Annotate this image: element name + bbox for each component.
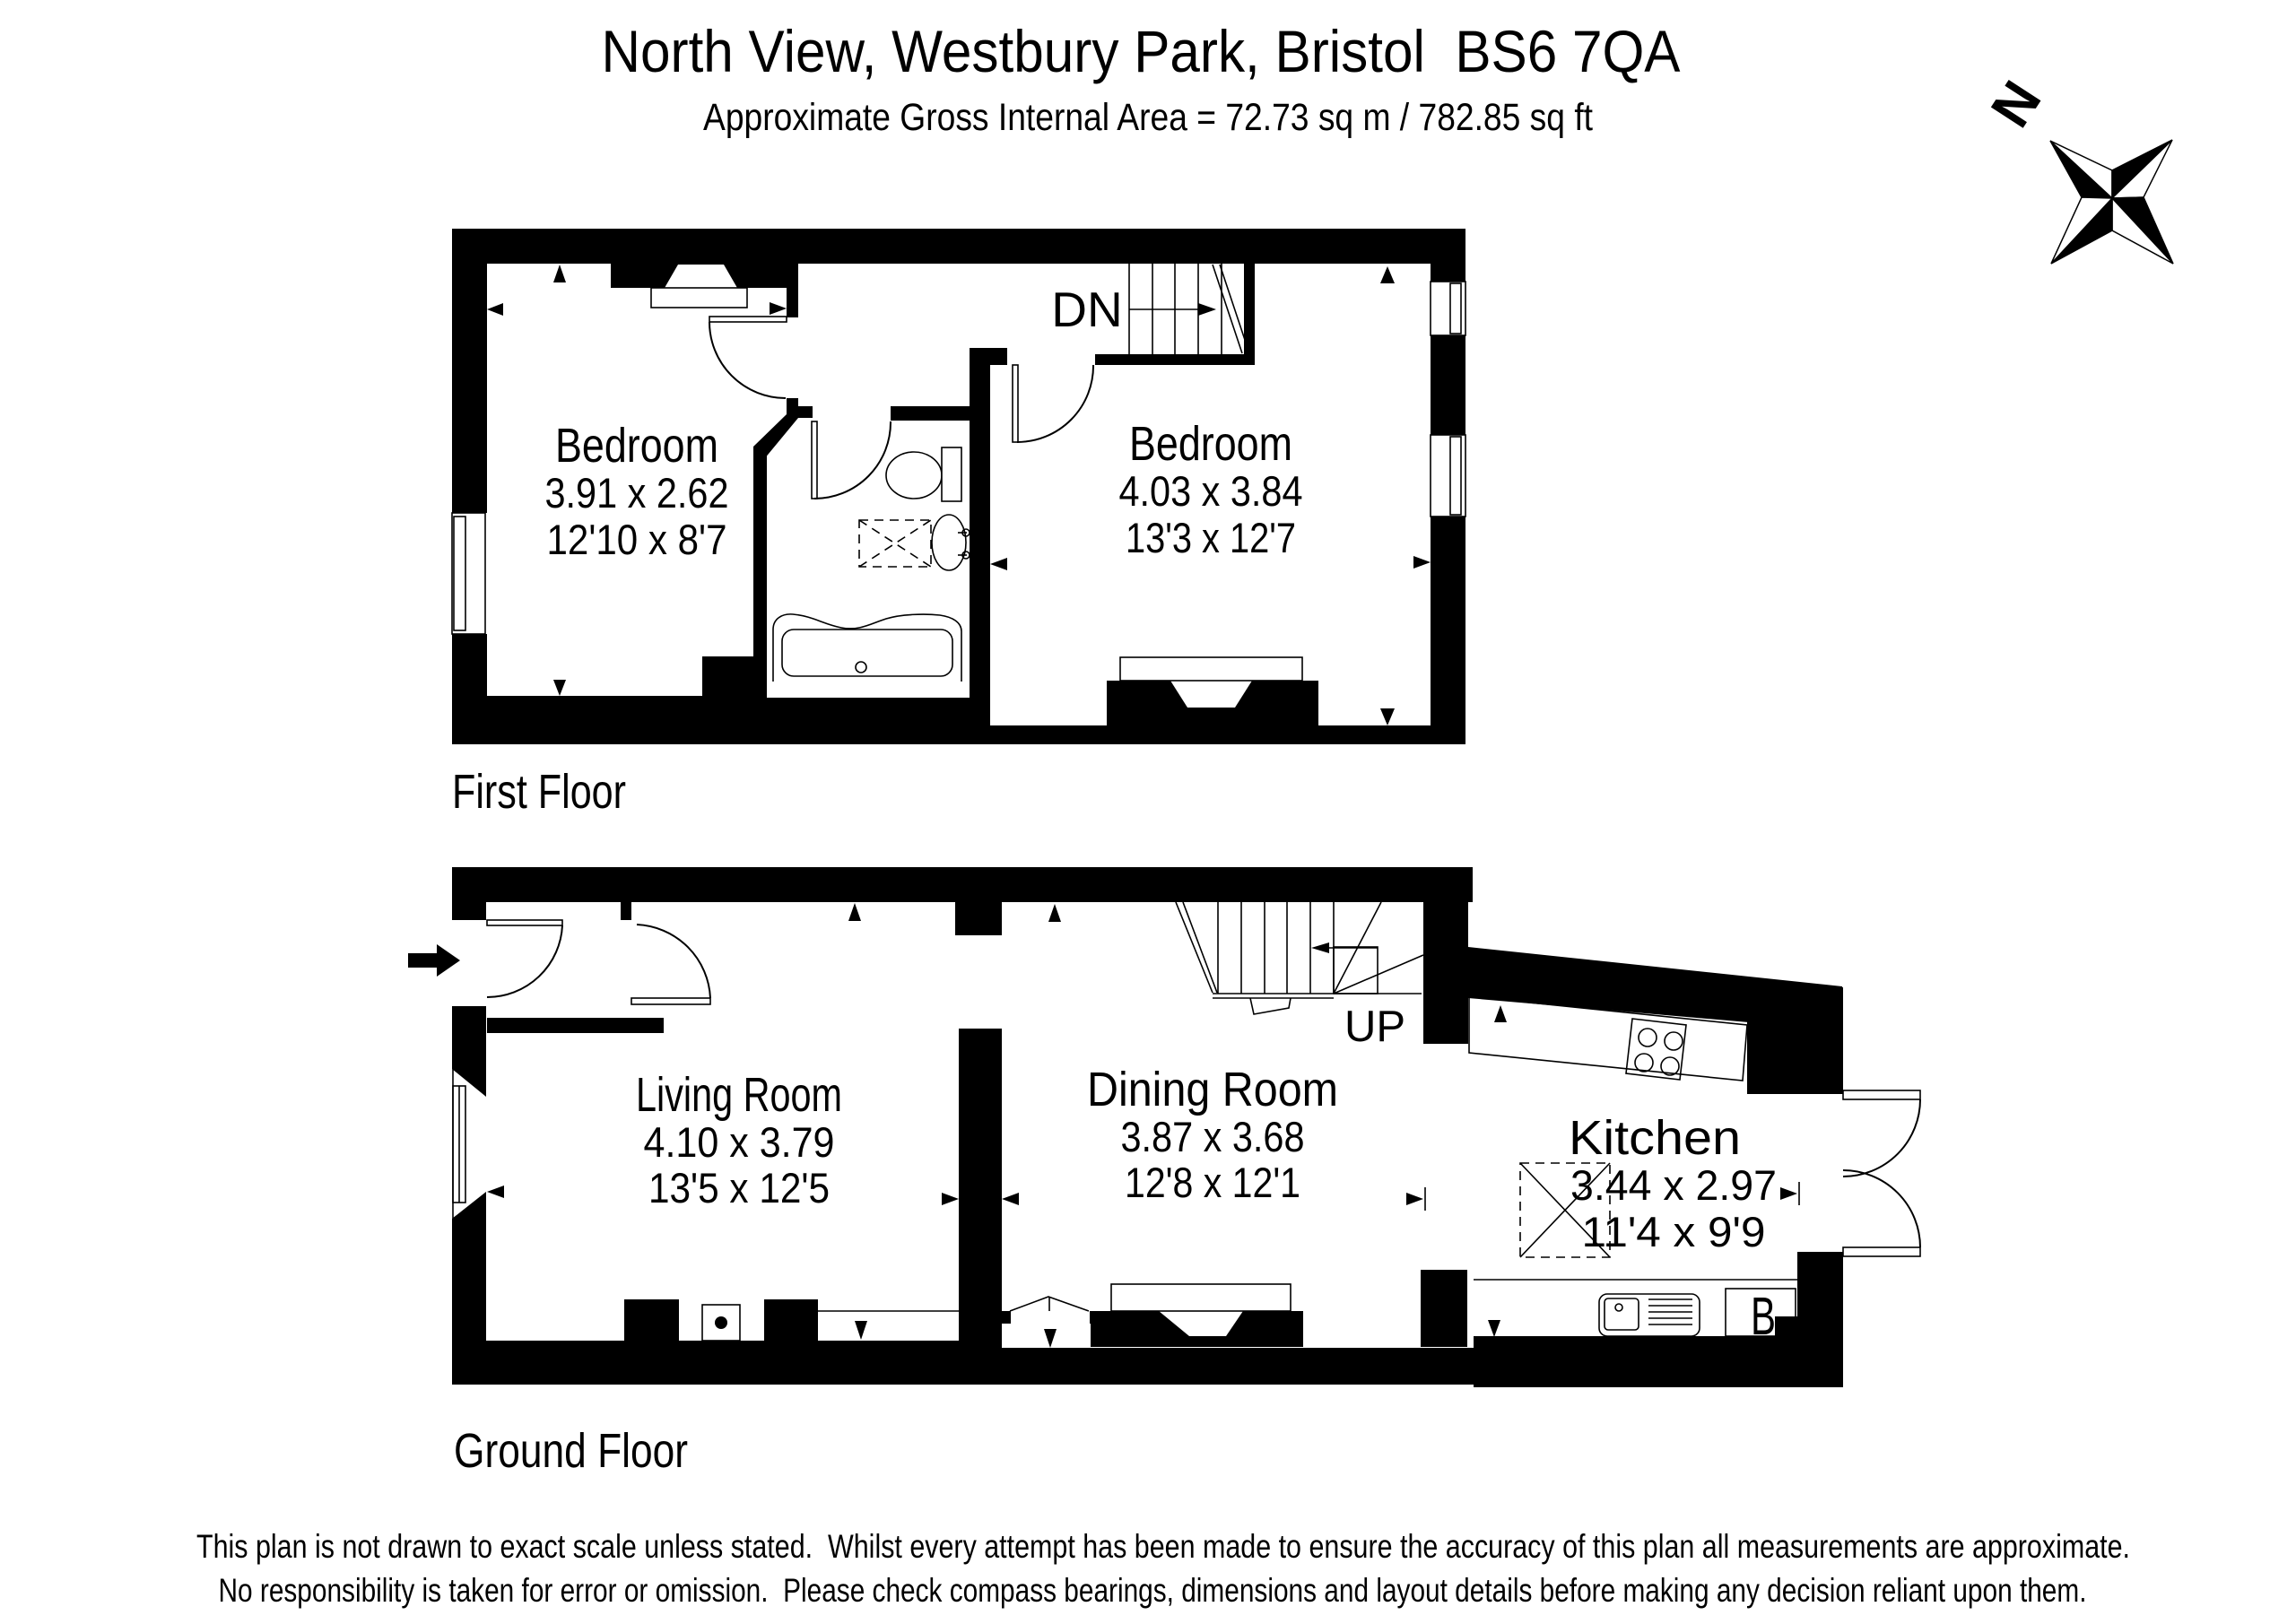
svg-text:4.10 x 3.79: 4.10 x 3.79	[644, 1118, 835, 1166]
svg-text:Kitchen: Kitchen	[1569, 1111, 1741, 1165]
svg-text:Approximate Gross Internal Are: Approximate Gross Internal Area = 72.73 …	[703, 96, 1593, 139]
svg-text:Bedroom: Bedroom	[1129, 417, 1292, 471]
svg-text:North View, Westbury Park, Bri: North View, Westbury Park, Bristol BS6 7…	[602, 18, 1681, 84]
svg-text:B: B	[1751, 1287, 1776, 1346]
svg-text:Bedroom: Bedroom	[555, 419, 718, 473]
svg-text:No responsibility is taken for: No responsibility is taken for error or …	[219, 1572, 2087, 1609]
svg-text:3.44 x 2.97: 3.44 x 2.97	[1570, 1161, 1777, 1209]
svg-text:Ground Floor: Ground Floor	[454, 1424, 688, 1478]
svg-text:This plan is not drawn to exac: This plan is not drawn to exact scale un…	[196, 1528, 2130, 1565]
svg-text:11'4 x 9'9: 11'4 x 9'9	[1582, 1208, 1766, 1255]
svg-text:3.91 x 2.62: 3.91 x 2.62	[545, 469, 729, 517]
svg-text:12'8 x 12'1: 12'8 x 12'1	[1125, 1159, 1300, 1206]
svg-text:12'10 x 8'7: 12'10 x 8'7	[547, 516, 727, 563]
svg-text:Dining Room: Dining Room	[1087, 1063, 1338, 1116]
svg-text:First Floor: First Floor	[452, 765, 626, 819]
svg-text:3.87 x 3.68: 3.87 x 3.68	[1121, 1113, 1305, 1160]
svg-text:UP: UP	[1344, 1003, 1405, 1051]
svg-text:DN: DN	[1051, 282, 1122, 337]
svg-text:13'5 x 12'5: 13'5 x 12'5	[648, 1164, 830, 1211]
svg-text:13'3 x 12'7: 13'3 x 12'7	[1126, 514, 1296, 561]
svg-text:Living Room: Living Room	[636, 1068, 842, 1122]
svg-text:4.03 x 3.84: 4.03 x 3.84	[1119, 467, 1303, 515]
